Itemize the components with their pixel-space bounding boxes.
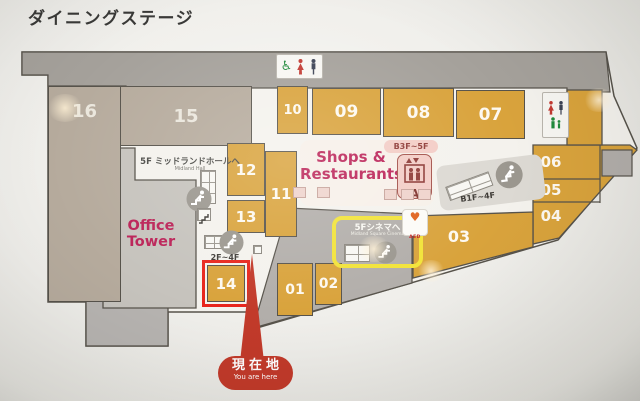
section-09-label: 09 (335, 102, 359, 122)
woman-icon (296, 59, 305, 75)
section-07: 07 (456, 90, 525, 139)
stall-marker (384, 189, 397, 200)
accessible-restroom-sign: ♿ (276, 54, 323, 79)
midland-hall-destination: 5F ミッドランドホールへ Midland Hall (128, 155, 252, 172)
restroom-figures (547, 101, 565, 115)
aed-label: AED (409, 235, 421, 240)
elevator-floor-range-badge: B3F~5F (384, 140, 438, 153)
family-toilet-icon (548, 117, 563, 129)
stall-marker (317, 187, 330, 198)
section-02: 02 (315, 263, 342, 305)
escalator-icon (494, 159, 526, 194)
section-10-label: 10 (283, 103, 301, 118)
right-gray-room (602, 150, 632, 176)
restroom-sign (542, 92, 569, 138)
section-13-label: 13 (236, 208, 257, 226)
you-are-here-en: You are here (218, 373, 293, 381)
man-icon (557, 101, 565, 115)
office-tower-label: Office Tower (102, 218, 200, 250)
section-13: 13 (227, 200, 265, 233)
stall-marker (293, 187, 306, 198)
directory-sign-board: ダイニングステージ 16 15 10 09 08 07 12 11 13 01 … (0, 0, 640, 401)
escalator-icon (374, 241, 397, 268)
section-06-text: 06 (541, 153, 562, 171)
section-16: 16 (48, 86, 121, 302)
section-03-text: 03 (448, 227, 470, 246)
section-09: 09 (312, 88, 381, 135)
section-04-label: 04 (533, 202, 569, 230)
section-15-label: 15 (173, 106, 198, 127)
shops-restaurants-label: Shops & Restaurants (300, 149, 402, 184)
man-icon (309, 59, 318, 75)
section-02-label: 02 (319, 276, 338, 292)
you-are-here-jp: 現在地 (218, 359, 293, 373)
section-07-label: 07 (479, 105, 503, 125)
section-03-label: 03 (428, 222, 490, 250)
stall-marker (401, 189, 414, 200)
section-11-label: 11 (271, 185, 292, 203)
section-14-label: 14 (216, 275, 237, 293)
escalator-ramp-shape (344, 244, 370, 262)
section-08-label: 08 (407, 103, 431, 123)
stairs-icon (197, 208, 211, 221)
section-04-text: 04 (541, 207, 562, 225)
section-01: 01 (277, 263, 313, 316)
elevator-glyph (398, 155, 431, 184)
right-upper-section-block (567, 90, 602, 145)
wheelchair-icon: ♿ (281, 60, 293, 73)
you-are-here-marker: 現在地 You are here (218, 356, 293, 390)
section-08: 08 (383, 88, 454, 137)
section-16-label: 16 (72, 101, 97, 122)
section-01-label: 01 (285, 282, 304, 298)
section-15: 15 (120, 86, 252, 146)
section-10: 10 (277, 86, 308, 134)
aed-heart-icon: ♥ (403, 211, 427, 223)
stall-marker (418, 189, 431, 200)
you-are-here-pointer-stem (238, 252, 266, 364)
shops-label-line2: Restaurants (300, 166, 402, 183)
woman-icon (547, 101, 555, 115)
aed-station: ♥ AED (402, 209, 428, 236)
